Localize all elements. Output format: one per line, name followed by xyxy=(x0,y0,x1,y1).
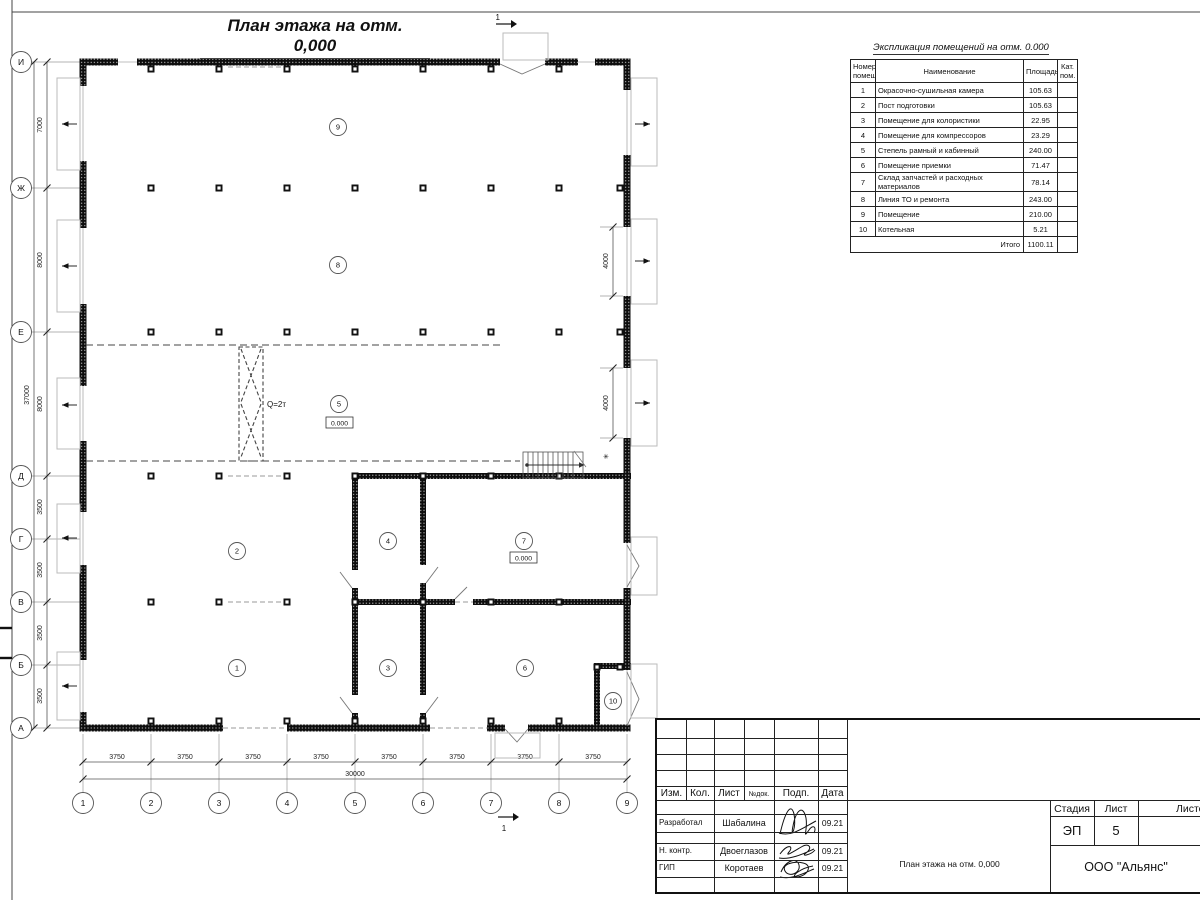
schedule-total-area: 1100.11 xyxy=(1024,237,1058,253)
svg-text:5: 5 xyxy=(353,798,358,808)
tb-doc-title: План этажа на отм. 0,000 xyxy=(852,860,1047,869)
room-circle-4: 4 xyxy=(380,533,397,550)
tb-date-gip: 09.21 xyxy=(818,864,847,873)
room-circle-5: 5 xyxy=(331,396,348,413)
dim-vertical-total: 37000 xyxy=(24,385,31,405)
dimension-texts: 7000 8000 8000 3500 3500 3500 3500 37000… xyxy=(24,117,610,778)
svg-text:4: 4 xyxy=(386,537,390,546)
work-zone xyxy=(86,345,520,461)
svg-text:Б: Б xyxy=(18,660,24,670)
schedule-row: 2Пост подготовки105.63 xyxy=(851,98,1078,113)
schedule-col-area: Площадь xyxy=(1024,60,1058,83)
svg-text:В: В xyxy=(18,597,24,607)
room-circle-7: 7 xyxy=(516,533,533,550)
svg-text:9: 9 xyxy=(625,798,630,808)
svg-text:0.000: 0.000 xyxy=(331,421,348,428)
svg-text:10: 10 xyxy=(609,697,617,706)
svg-text:8: 8 xyxy=(336,261,340,270)
schedule-row: 8Линия ТО и ремонта243.00 xyxy=(851,192,1078,207)
tb-stage-label: Стадия xyxy=(1050,804,1094,815)
tb-sheets-label: Листов xyxy=(1138,804,1200,815)
columns xyxy=(148,66,624,725)
dim-vertical-2: 8000 xyxy=(37,396,44,412)
schedule-total-row: Итого 1100.11 xyxy=(851,237,1078,253)
svg-text:1: 1 xyxy=(496,13,501,22)
dim-horizontal-total: 30000 xyxy=(345,771,365,778)
room-circle-2: 2 xyxy=(229,543,246,560)
lift-symbol xyxy=(239,347,263,461)
tb-name-ncontrol: Двоеглазов xyxy=(714,847,774,856)
svg-text:2: 2 xyxy=(149,798,154,808)
room-circle-9: 9 xyxy=(330,119,347,136)
svg-text:8: 8 xyxy=(557,798,562,808)
schedule-row: 4Помещение для компрессоров23.29 xyxy=(851,128,1078,143)
tb-col-doc: №док. xyxy=(744,791,774,798)
svg-text:3: 3 xyxy=(217,798,222,808)
svg-text:3: 3 xyxy=(386,664,390,673)
dim-vertical-3: 3500 xyxy=(37,499,44,515)
schedule-row: 6Помещение приемки71.47 xyxy=(851,158,1078,173)
svg-text:0.000: 0.000 xyxy=(515,556,532,563)
svg-text:1: 1 xyxy=(235,664,239,673)
schedule-col-name: Наименование xyxy=(876,60,1024,83)
schedule-row: 5Степель рамный и кабинный240.00 xyxy=(851,143,1078,158)
title-block: Изм. Кол. Лист №док. Подп. Дата Разработ… xyxy=(655,718,1200,894)
dim-horizontal-5: 3750 xyxy=(449,754,465,761)
schedule-row: 3Помещение для колористики22.95 xyxy=(851,113,1078,128)
note-asterisk: ✳ xyxy=(603,453,609,461)
schedule-header-row: Номер помещ. Наименование Площадь Кат. п… xyxy=(851,60,1078,83)
schedule-row: 1Окрасочно-сушильная камера105.63 xyxy=(851,83,1078,98)
svg-text:2: 2 xyxy=(235,547,239,556)
dim-horizontal-3: 3750 xyxy=(313,754,329,761)
plan-title: План этажа на отм. 0,000 xyxy=(200,16,430,59)
schedule-total-label: Итого xyxy=(851,237,1024,253)
room-circle-6: 6 xyxy=(517,660,534,677)
svg-text:Д: Д xyxy=(18,471,24,481)
tb-role-developer: Разработал xyxy=(659,819,714,827)
room-circle-8: 8 xyxy=(330,257,347,274)
dim-vertical-1: 8000 xyxy=(37,252,44,268)
tb-col-izm: Изм. xyxy=(657,789,686,799)
tb-col-kol: Кол. xyxy=(686,789,714,799)
tb-name-developer: Шабалина xyxy=(714,819,774,828)
tb-sheet-value: 5 xyxy=(1094,824,1138,837)
section-mark-top: 1 xyxy=(496,13,517,28)
svg-text:9: 9 xyxy=(336,123,340,132)
svg-text:5: 5 xyxy=(337,400,341,409)
room-circle-10: 10 xyxy=(605,693,622,710)
tb-sheet-label: Лист xyxy=(1094,804,1138,815)
svg-text:Ж: Ж xyxy=(17,183,25,193)
dim-horizontal-1: 3750 xyxy=(177,754,193,761)
svg-text:1: 1 xyxy=(81,798,86,808)
schedule-table: Номер помещ. Наименование Площадь Кат. п… xyxy=(850,59,1078,253)
tb-col-sign: Подп. xyxy=(774,789,818,799)
dim-vertical-0: 7000 xyxy=(37,117,44,133)
svg-text:4: 4 xyxy=(285,798,290,808)
tb-name-gip: Коротаев xyxy=(714,864,774,873)
tb-role-gip: ГИП xyxy=(659,864,714,872)
drawing-sheet: 7000 8000 8000 3500 3500 3500 3500 37000… xyxy=(0,0,1200,900)
dim-vertical-4: 3500 xyxy=(37,562,44,578)
svg-text:Е: Е xyxy=(18,327,24,337)
gate-dim-0: 4000 xyxy=(603,253,610,269)
svg-text:6: 6 xyxy=(523,664,527,673)
crane-capacity-label: Q=2т xyxy=(267,400,286,409)
svg-text:И: И xyxy=(18,57,24,67)
dim-horizontal-0: 3750 xyxy=(109,754,125,761)
schedule-title: Экспликация помещений на отм. 0.000 xyxy=(845,42,1077,53)
gate-dim-1: 4000 xyxy=(603,395,610,411)
room-schedule: Экспликация помещений на отм. 0.000 Номе… xyxy=(845,42,1090,253)
schedule-row: 9Помещение210.00 xyxy=(851,207,1078,222)
svg-text:7: 7 xyxy=(522,537,526,546)
section-mark-bottom: 1 xyxy=(498,813,519,833)
tb-company: ООО "Альянс" xyxy=(1050,861,1200,874)
svg-text:А: А xyxy=(18,723,24,733)
schedule-col-num: Номер помещ. xyxy=(851,60,876,83)
dim-horizontal-2: 3750 xyxy=(245,754,261,761)
dim-vertical-6: 3500 xyxy=(37,688,44,704)
dim-horizontal-4: 3750 xyxy=(381,754,397,761)
doors xyxy=(340,64,639,742)
svg-text:6: 6 xyxy=(421,798,426,808)
room-circle-3: 3 xyxy=(380,660,397,677)
tb-col-list: Лист xyxy=(714,789,744,799)
schedule-row: 10Котельная5.21 xyxy=(851,222,1078,237)
tb-date-developer: 09.21 xyxy=(818,819,847,828)
tb-stage-value: ЭП xyxy=(1050,824,1094,837)
tb-col-date: Дата xyxy=(818,789,847,799)
tb-date-ncontrol: 09.21 xyxy=(818,847,847,856)
axis-bubbles-horizontal: 1 2 3 4 5 6 7 8 9 xyxy=(73,793,638,814)
room-circle-1: 1 xyxy=(229,660,246,677)
schedule-col-cat: Кат. пом. xyxy=(1058,60,1078,83)
dim-vertical-5: 3500 xyxy=(37,625,44,641)
dim-horizontal-7: 3750 xyxy=(585,754,601,761)
svg-text:1: 1 xyxy=(502,824,507,833)
schedule-row: 7Склад запчастей и расходных материалов7… xyxy=(851,173,1078,192)
tb-role-ncontrol: Н. контр. xyxy=(659,847,714,855)
svg-text:7: 7 xyxy=(489,798,494,808)
svg-text:Г: Г xyxy=(19,534,24,544)
